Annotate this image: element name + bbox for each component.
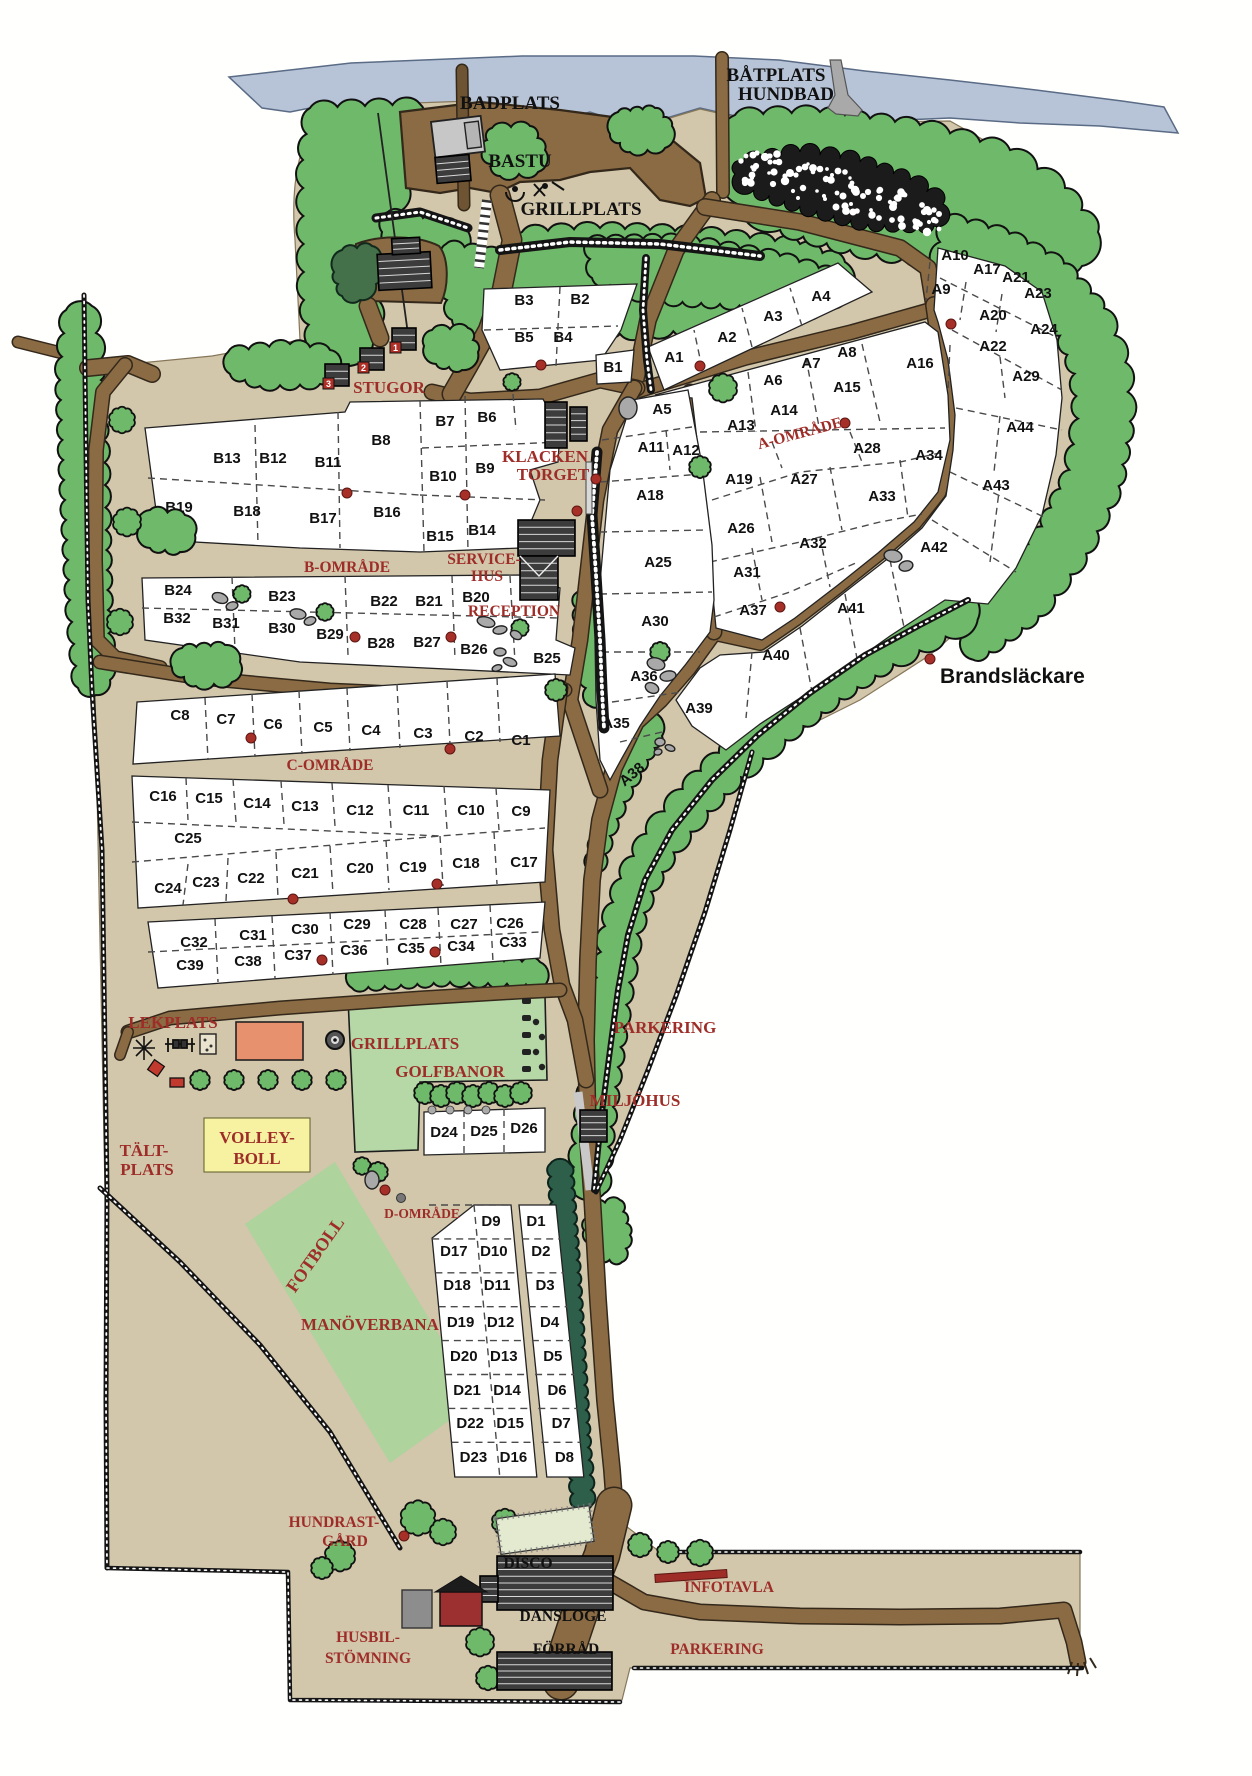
svg-text:A39: A39 xyxy=(685,700,713,717)
svg-text:C35: C35 xyxy=(397,940,425,957)
svg-text:D1: D1 xyxy=(526,1213,545,1230)
svg-text:MANÖVERBANA: MANÖVERBANA xyxy=(301,1315,440,1334)
svg-text:A16: A16 xyxy=(906,355,934,372)
svg-text:A27: A27 xyxy=(790,471,818,488)
svg-text:B25: B25 xyxy=(533,650,561,667)
svg-text:D15: D15 xyxy=(496,1415,524,1432)
svg-text:DANSLOGE: DANSLOGE xyxy=(520,1608,607,1625)
svg-text:B9: B9 xyxy=(475,460,494,477)
svg-text:A34: A34 xyxy=(915,447,943,464)
svg-text:A19: A19 xyxy=(725,471,753,488)
svg-text:B10: B10 xyxy=(429,468,457,485)
svg-text:A26: A26 xyxy=(727,520,755,537)
svg-text:C2: C2 xyxy=(464,728,483,745)
svg-text:C25: C25 xyxy=(174,830,202,847)
svg-text:A20: A20 xyxy=(979,307,1007,324)
svg-text:GÅRD: GÅRD xyxy=(322,1533,368,1550)
svg-text:A36: A36 xyxy=(630,668,658,685)
svg-text:C16: C16 xyxy=(149,788,177,805)
svg-text:A37: A37 xyxy=(739,602,767,619)
svg-text:C32: C32 xyxy=(180,934,208,951)
svg-text:A14: A14 xyxy=(770,402,798,419)
svg-text:C38: C38 xyxy=(234,953,262,970)
svg-text:PARKERING: PARKERING xyxy=(670,1641,764,1658)
svg-text:D2: D2 xyxy=(531,1243,550,1260)
svg-text:BÅTPLATS: BÅTPLATS xyxy=(727,65,826,86)
svg-text:A3: A3 xyxy=(763,308,782,325)
svg-text:D26: D26 xyxy=(510,1120,538,1137)
svg-text:B2: B2 xyxy=(570,291,589,308)
svg-text:B26: B26 xyxy=(460,641,488,658)
svg-text:B32: B32 xyxy=(163,610,191,627)
svg-text:HUS: HUS xyxy=(471,568,503,585)
svg-text:D12: D12 xyxy=(487,1314,515,1331)
svg-text:A22: A22 xyxy=(979,338,1007,355)
svg-text:TORGET: TORGET xyxy=(517,465,590,484)
svg-text:A2: A2 xyxy=(717,329,736,346)
svg-text:RECEPTION: RECEPTION xyxy=(468,603,560,620)
svg-text:A24: A24 xyxy=(1030,321,1058,338)
svg-text:D23: D23 xyxy=(460,1449,488,1466)
svg-text:LEKPLATS: LEKPLATS xyxy=(128,1013,217,1032)
svg-text:C12: C12 xyxy=(346,802,374,819)
svg-text:D4: D4 xyxy=(540,1314,560,1331)
svg-text:B28: B28 xyxy=(367,635,395,652)
svg-text:KLACKEN: KLACKEN xyxy=(502,447,589,466)
svg-text:D21: D21 xyxy=(453,1382,481,1399)
svg-text:B6: B6 xyxy=(477,409,496,426)
svg-text:B23: B23 xyxy=(268,588,296,605)
svg-text:A15: A15 xyxy=(833,379,861,396)
svg-text:A31: A31 xyxy=(733,564,761,581)
svg-text:A30: A30 xyxy=(641,613,669,630)
svg-text:C29: C29 xyxy=(343,916,371,933)
svg-text:D11: D11 xyxy=(484,1277,511,1294)
svg-text:HUSBIL-: HUSBIL- xyxy=(336,1629,400,1646)
svg-text:C8: C8 xyxy=(170,707,189,724)
svg-text:A8: A8 xyxy=(837,344,856,361)
svg-text:D14: D14 xyxy=(493,1382,521,1399)
svg-text:A25: A25 xyxy=(644,554,672,571)
svg-text:D25: D25 xyxy=(470,1123,498,1140)
svg-text:A6: A6 xyxy=(763,372,782,389)
svg-text:A40: A40 xyxy=(762,647,790,664)
svg-text:D5: D5 xyxy=(543,1348,562,1365)
svg-text:INFOTAVLA: INFOTAVLA xyxy=(684,1579,775,1596)
svg-text:D18: D18 xyxy=(443,1277,471,1294)
svg-text:C26: C26 xyxy=(496,915,524,932)
svg-text:A21: A21 xyxy=(1002,269,1030,286)
svg-text:A11: A11 xyxy=(638,439,665,456)
svg-text:BASTU: BASTU xyxy=(488,151,552,172)
svg-text:MILJÖHUS: MILJÖHUS xyxy=(590,1091,681,1110)
svg-text:3: 3 xyxy=(326,379,331,389)
svg-text:C19: C19 xyxy=(399,859,427,876)
svg-text:B27: B27 xyxy=(413,634,441,651)
svg-text:C36: C36 xyxy=(340,942,368,959)
svg-text:C20: C20 xyxy=(346,860,374,877)
svg-text:C-OMRÅDE: C-OMRÅDE xyxy=(287,757,374,774)
svg-text:D8: D8 xyxy=(555,1449,574,1466)
svg-text:C23: C23 xyxy=(192,874,220,891)
svg-text:C18: C18 xyxy=(452,855,480,872)
svg-text:D16: D16 xyxy=(500,1449,528,1466)
svg-text:B15: B15 xyxy=(426,528,454,545)
svg-text:A9: A9 xyxy=(931,281,950,298)
svg-text:C17: C17 xyxy=(510,854,538,871)
svg-text:D-OMRÅDE: D-OMRÅDE xyxy=(384,1206,460,1221)
svg-text:D9: D9 xyxy=(481,1213,500,1230)
svg-text:GRILLPLATS: GRILLPLATS xyxy=(351,1034,459,1053)
svg-text:A28: A28 xyxy=(853,440,881,457)
svg-text:D17: D17 xyxy=(440,1243,468,1260)
svg-text:C33: C33 xyxy=(499,934,527,951)
svg-text:A13: A13 xyxy=(727,417,755,434)
svg-text:C1: C1 xyxy=(511,732,530,749)
svg-text:C14: C14 xyxy=(243,795,271,812)
svg-text:BADPLATS: BADPLATS xyxy=(460,93,560,114)
svg-text:B14: B14 xyxy=(468,522,496,539)
svg-text:D22: D22 xyxy=(456,1415,484,1432)
svg-text:A1: A1 xyxy=(664,349,683,366)
svg-text:GRILLPLATS: GRILLPLATS xyxy=(520,199,641,220)
svg-text:GOLFBANOR: GOLFBANOR xyxy=(395,1062,505,1081)
svg-text:FÖRRÅD: FÖRRÅD xyxy=(533,1641,599,1658)
svg-text:B4: B4 xyxy=(553,329,573,346)
svg-text:A5: A5 xyxy=(652,401,671,418)
svg-text:A4: A4 xyxy=(811,288,831,305)
svg-text:D19: D19 xyxy=(447,1314,475,1331)
svg-text:HUNDRAST-: HUNDRAST- xyxy=(289,1514,380,1531)
svg-text:B17: B17 xyxy=(309,510,337,527)
svg-text:B22: B22 xyxy=(370,593,398,610)
svg-text:B24: B24 xyxy=(164,582,192,599)
svg-text:C27: C27 xyxy=(450,916,478,933)
svg-text:A23: A23 xyxy=(1024,285,1052,302)
svg-text:A32: A32 xyxy=(799,535,827,552)
svg-text:D6: D6 xyxy=(547,1382,566,1399)
svg-text:2: 2 xyxy=(361,363,366,373)
svg-text:C5: C5 xyxy=(313,719,332,736)
svg-text:Brandsläckare: Brandsläckare xyxy=(940,665,1085,688)
svg-text:B30: B30 xyxy=(268,620,296,637)
svg-text:A42: A42 xyxy=(920,539,948,556)
svg-text:D10: D10 xyxy=(480,1243,508,1260)
svg-text:1: 1 xyxy=(393,343,398,353)
svg-text:B31: B31 xyxy=(212,615,240,632)
svg-text:C28: C28 xyxy=(399,916,427,933)
svg-text:A29: A29 xyxy=(1012,368,1040,385)
svg-text:A44: A44 xyxy=(1006,419,1034,436)
svg-text:C13: C13 xyxy=(291,798,319,815)
svg-text:VOLLEY-: VOLLEY- xyxy=(219,1128,295,1147)
svg-text:B12: B12 xyxy=(259,450,287,467)
svg-text:DISCO: DISCO xyxy=(503,1555,552,1572)
svg-text:A33: A33 xyxy=(868,488,896,505)
svg-text:C24: C24 xyxy=(154,880,182,897)
svg-text:PLATS: PLATS xyxy=(120,1160,174,1179)
svg-text:D13: D13 xyxy=(490,1348,518,1365)
svg-text:B8: B8 xyxy=(371,432,390,449)
svg-text:C15: C15 xyxy=(195,790,223,807)
svg-text:C34: C34 xyxy=(447,938,475,955)
svg-text:B29: B29 xyxy=(316,626,344,643)
svg-text:A10: A10 xyxy=(941,247,969,264)
svg-text:C9: C9 xyxy=(511,803,530,820)
svg-text:STUGOR: STUGOR xyxy=(353,378,426,397)
svg-text:C10: C10 xyxy=(457,802,485,819)
svg-text:A41: A41 xyxy=(837,600,865,617)
svg-text:TÄLT-: TÄLT- xyxy=(120,1141,169,1160)
svg-text:B1: B1 xyxy=(603,359,622,376)
svg-text:BOLL: BOLL xyxy=(233,1149,280,1168)
svg-text:B7: B7 xyxy=(435,413,454,430)
svg-text:STÖMNING: STÖMNING xyxy=(325,1650,411,1667)
svg-text:D20: D20 xyxy=(450,1348,478,1365)
svg-text:C22: C22 xyxy=(237,870,265,887)
svg-text:A7: A7 xyxy=(801,355,820,372)
svg-text:D7: D7 xyxy=(552,1415,571,1432)
svg-text:B18: B18 xyxy=(233,503,261,520)
svg-text:C11: C11 xyxy=(403,802,430,819)
svg-text:D3: D3 xyxy=(535,1277,554,1294)
svg-text:A17: A17 xyxy=(973,261,1001,278)
svg-text:B5: B5 xyxy=(514,329,533,346)
svg-text:B21: B21 xyxy=(415,593,443,610)
svg-text:C30: C30 xyxy=(291,921,319,938)
svg-text:HUNDBAD: HUNDBAD xyxy=(738,84,834,105)
svg-text:B3: B3 xyxy=(514,292,533,309)
svg-text:C4: C4 xyxy=(361,722,381,739)
svg-text:C7: C7 xyxy=(216,711,235,728)
svg-text:C3: C3 xyxy=(413,725,432,742)
svg-text:SERVICE-: SERVICE- xyxy=(447,551,521,568)
svg-text:B16: B16 xyxy=(373,504,401,521)
svg-text:D24: D24 xyxy=(430,1124,458,1141)
svg-text:C39: C39 xyxy=(176,957,204,974)
svg-text:B-OMRÅDE: B-OMRÅDE xyxy=(304,559,390,576)
svg-text:A43: A43 xyxy=(982,477,1010,494)
svg-text:B11: B11 xyxy=(315,454,342,471)
svg-text:C31: C31 xyxy=(239,927,267,944)
svg-text:C21: C21 xyxy=(291,865,319,882)
svg-text:C37: C37 xyxy=(284,947,312,964)
svg-text:C6: C6 xyxy=(263,716,282,733)
svg-text:B13: B13 xyxy=(213,450,241,467)
svg-text:A18: A18 xyxy=(636,487,664,504)
svg-text:PARKERING: PARKERING xyxy=(614,1018,717,1037)
